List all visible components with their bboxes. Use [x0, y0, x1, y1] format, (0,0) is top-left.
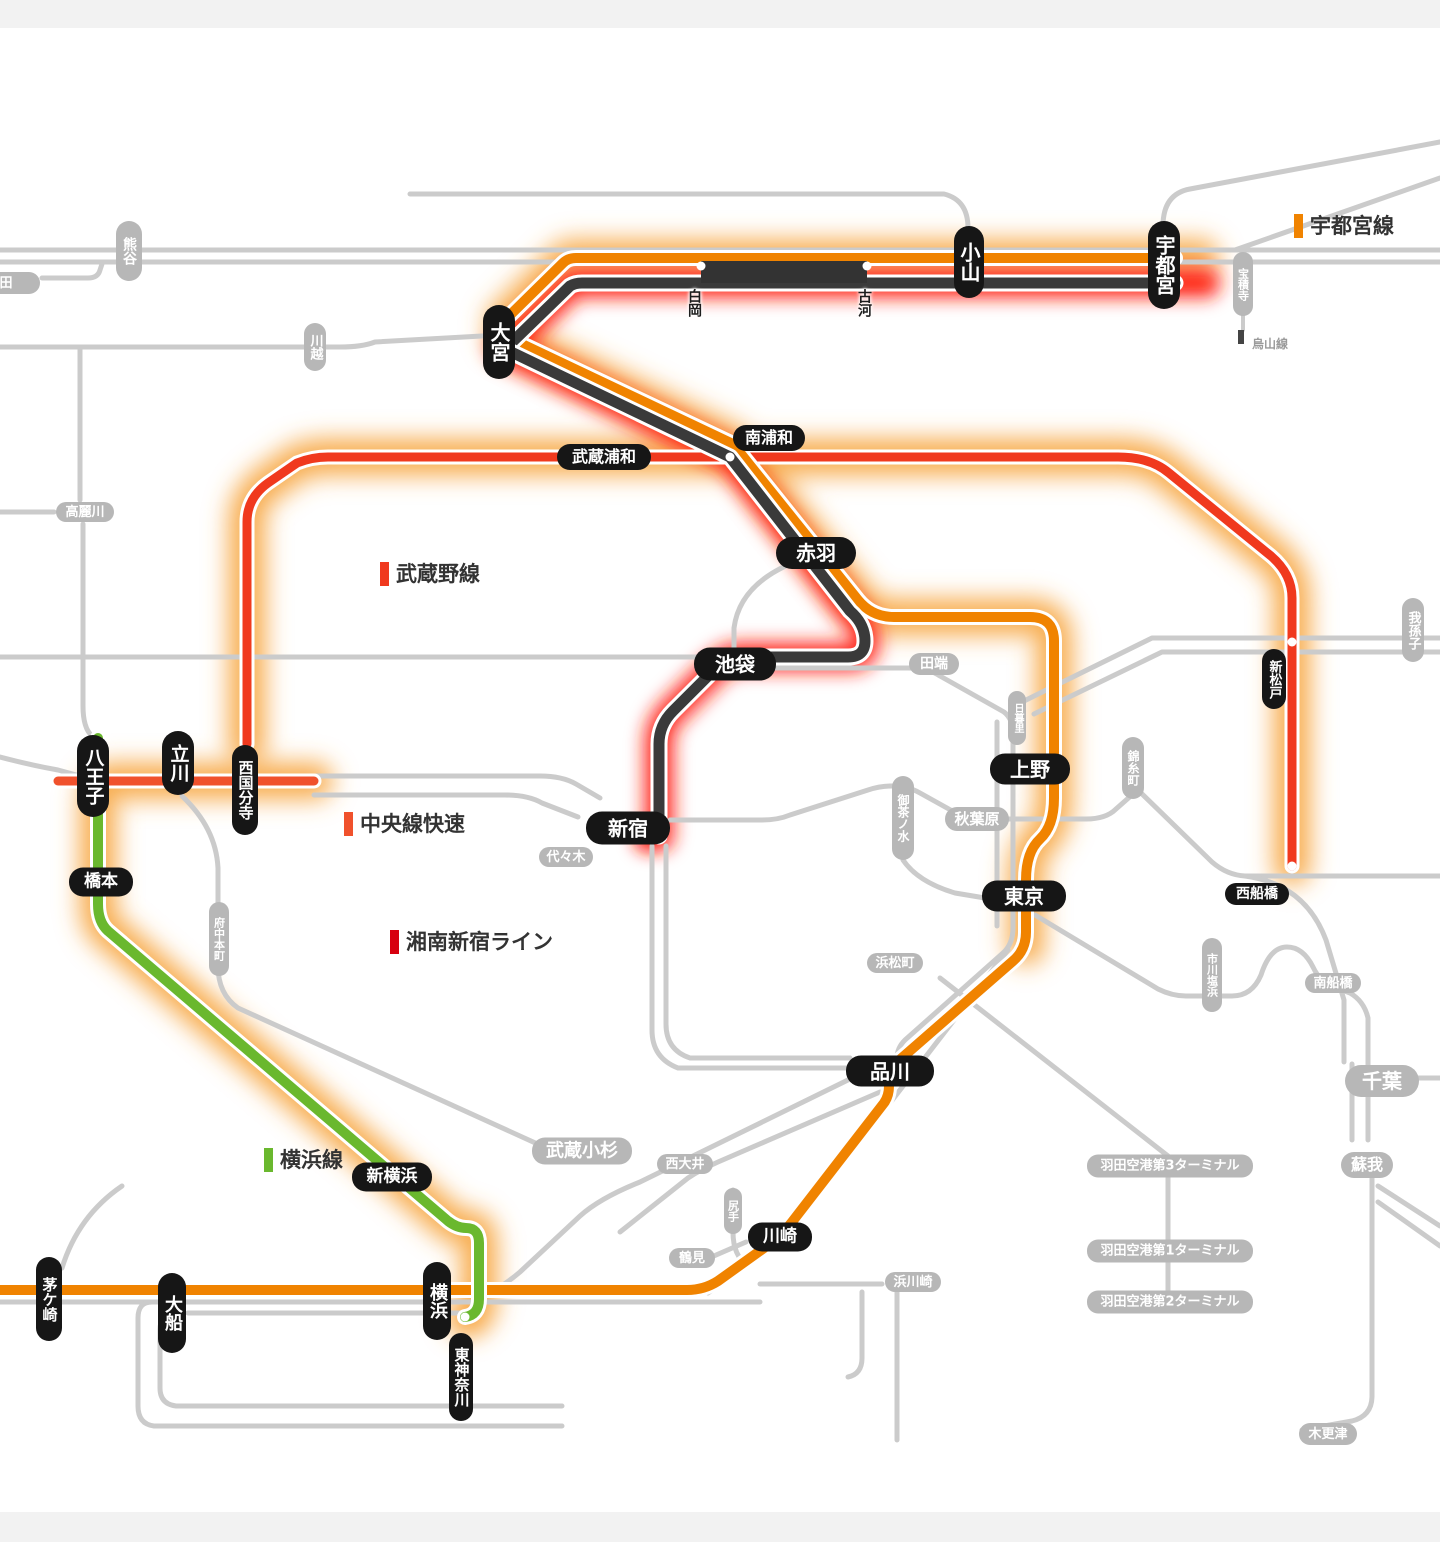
gray-joban-2 [1034, 652, 1440, 714]
legend-shonan-shinjuku: 湘南新宿ライン [390, 930, 553, 954]
station-tabata: 田端 [909, 653, 959, 675]
gray-oyama-branch [410, 194, 968, 228]
station-soga: 蘇我 [1341, 1152, 1393, 1178]
legend-bar-chuo-rapid [344, 812, 353, 836]
gray-joban-1 [1022, 638, 1440, 702]
legend-musashino-line: 武蔵野線 [380, 562, 480, 586]
gray-kawagoe-line [0, 336, 482, 347]
gray-honjo-waseda-link [42, 264, 102, 278]
station-musashi-kosugi: 武蔵小杉 [532, 1138, 632, 1165]
karasuyama-branch-label: 烏山線 [1252, 338, 1288, 350]
gray-hachiko-south [83, 524, 92, 736]
glow-shonan-north [505, 283, 1205, 349]
legend-utsunomiya-line: 宇都宮線 [1294, 214, 1394, 238]
station-shinagawa: 品川 [846, 1056, 934, 1087]
station-tokyo: 東京 [982, 881, 1066, 912]
station-nishi-kokubunji: 西国分寺 [232, 745, 258, 835]
station-nishi-oi: 西大井 [657, 1154, 713, 1174]
glow-chuo-yokohama-core [98, 781, 479, 1317]
legend-bar-shonan-shinjuku [390, 930, 399, 954]
dot-shin-matsudo [1288, 638, 1297, 647]
station-shiraoka-label: 白岡 [687, 289, 701, 317]
station-hoshakuji: 宝積寺 [1233, 252, 1253, 316]
station-shin-yokohama: 新横浜 [352, 1163, 432, 1192]
station-kawasaki: 川崎 [748, 1223, 812, 1252]
legend-bar-musashino [380, 562, 389, 586]
dot-koga [863, 262, 872, 271]
station-kisarazu: 木更津 [1299, 1423, 1357, 1445]
station-shitte: 尻手 [724, 1188, 742, 1234]
legend-bar-utsunomiya [1294, 214, 1303, 238]
legend-label-shonan-shinjuku: 湘南新宿ライン [406, 932, 553, 953]
gray-ome-stub [0, 757, 80, 776]
station-kinshicho: 錦糸町 [1122, 737, 1144, 799]
station-omiya: 大宮 [483, 305, 515, 379]
page-margin-bottom [0, 1512, 1440, 1542]
legend-label-chuo-rapid: 中央線快速 [360, 814, 465, 835]
gray-soga-south [1302, 1160, 1372, 1430]
station-tachikawa: 立川 [162, 731, 194, 795]
legend-bar-yokohama [264, 1148, 273, 1172]
station-komagawa: 高麗川 [56, 502, 114, 522]
station-hachioji: 八王子 [77, 735, 109, 817]
station-oyama: 小山 [954, 226, 984, 298]
dot-higashi-kanagawa [461, 1313, 470, 1322]
karasuyama-branch-tick [1238, 330, 1244, 344]
gray-yamanote-west-2 [666, 846, 850, 1058]
station-shinjuku: 新宿 [586, 812, 670, 845]
station-akihabara: 秋葉原 [945, 807, 1009, 831]
station-ofuna: 大船 [158, 1273, 186, 1353]
station-hashimoto: 橋本 [69, 868, 133, 897]
gray-sagami-stub [62, 1186, 122, 1268]
station-nippori: 日暮里 [1008, 691, 1026, 745]
station-musashi-urawa: 武蔵浦和 [557, 444, 651, 470]
station-yoyogi: 代々木 [539, 847, 593, 867]
station-haneda-terminal-3: 羽田空港第3ターミナル [1087, 1155, 1253, 1178]
station-hama-kawasaki: 浜川崎 [885, 1272, 941, 1292]
station-tsurumi: 鶴見 [669, 1248, 715, 1268]
station-ikebukuro: 池袋 [694, 648, 776, 681]
station-minami-funabashi: 南船橋 [1305, 973, 1361, 993]
gray-nambu-line [182, 796, 542, 1146]
station-shin-matsudo: 新松戸 [1262, 649, 1286, 709]
station-koga-label: 古河 [857, 289, 871, 317]
glow-chuo-yokohama [98, 781, 479, 1317]
station-fuchu-hommachi: 府中本町 [209, 902, 229, 976]
dot-shiraoka [697, 262, 706, 271]
legend-chuo-rapid: 中央線快速 [344, 812, 465, 836]
station-yokohama: 横浜 [423, 1262, 451, 1340]
page-margin-top [0, 0, 1440, 28]
legend-label-musashino: 武蔵野線 [396, 564, 480, 585]
gray-yamanote-west-1 [652, 846, 850, 1068]
station-ueno: 上野 [990, 754, 1070, 785]
gray-ochanomizu-tokyo [903, 860, 985, 898]
gray-ofuna-hook-2 [160, 1313, 562, 1406]
station-utsunomiya: 宇都宮 [1148, 221, 1180, 309]
station-akabane: 赤羽 [776, 537, 856, 569]
station-haneda-terminal-2: 羽田空港第2ターミナル [1087, 1291, 1253, 1314]
station-haneda-terminal-1: 羽田空港第1ターミナル [1087, 1240, 1253, 1263]
station-higashi-kanagawa: 東神奈川 [449, 1333, 473, 1421]
station-nishi-funabashi: 西船橋 [1225, 883, 1289, 905]
station-kawagoe: 川越 [304, 323, 326, 371]
dot-minami-urawa [726, 453, 735, 462]
legend-yokohama-line: 横浜線 [264, 1148, 343, 1172]
station-honjo-waseda: 本庄早稲田 [0, 272, 40, 294]
station-ochanomizu: 御茶ノ水 [892, 776, 914, 860]
legend-label-utsunomiya: 宇都宮線 [1310, 216, 1394, 237]
station-chigasaki: 茅ケ崎 [36, 1257, 62, 1341]
station-minami-urawa: 南浦和 [733, 425, 805, 451]
gray-akabane-ikebukuro [734, 560, 800, 648]
legend-label-yokohama: 横浜線 [280, 1150, 343, 1171]
station-chiba: 千葉 [1345, 1065, 1419, 1097]
station-ichikawa-shiohama: 市川塩浜 [1202, 938, 1222, 1012]
station-hamamatsucho: 浜松町 [867, 953, 923, 973]
station-kumagaya: 熊谷 [116, 221, 142, 281]
route-status-map: 宇都宮 小山 大宮 南浦和 武蔵浦和 赤羽 池袋 新宿 上野 東京 品川 川崎 … [0, 0, 1440, 1542]
dot-nishi-funabashi [1288, 862, 1297, 871]
gray-south-hook-1 [848, 1292, 862, 1377]
station-abiko: 我孫子 [1402, 598, 1424, 662]
